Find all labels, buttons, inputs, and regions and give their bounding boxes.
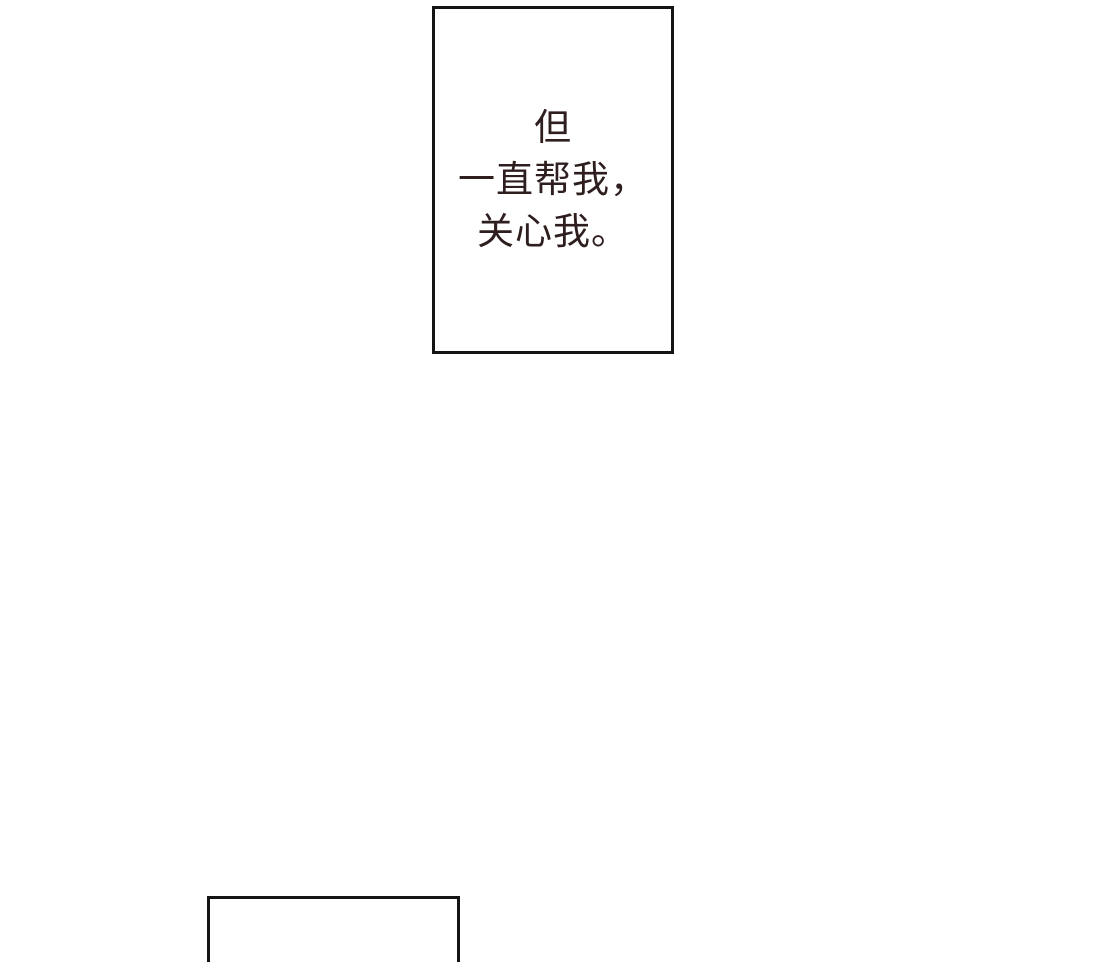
dialogue-panel: 但 一直帮我， 关心我。 — [432, 6, 674, 354]
dialogue-line-3: 关心我。 — [458, 206, 648, 258]
dialogue-line-1: 但 — [458, 102, 648, 154]
comic-page: 但 一直帮我， 关心我。 — [0, 0, 1100, 962]
dialogue-line-2: 一直帮我， — [458, 154, 648, 206]
dialogue-text: 但 一直帮我， 关心我。 — [458, 102, 648, 258]
empty-panel-cutoff — [207, 896, 460, 962]
